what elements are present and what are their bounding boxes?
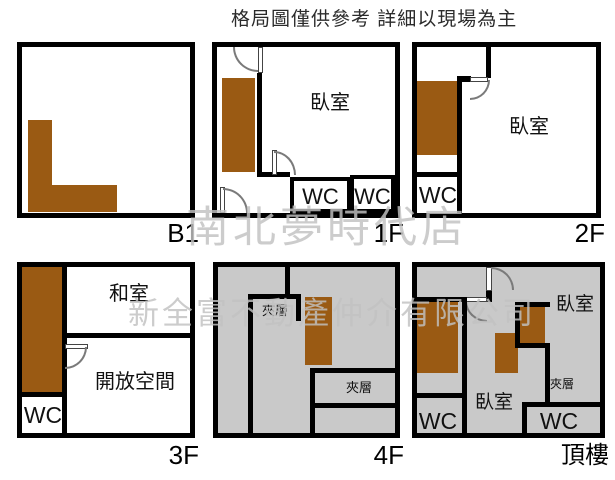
door-leaf-icon: [258, 47, 263, 73]
room-label-wc: WC: [418, 409, 458, 433]
wall: [67, 333, 190, 338]
door-arc-icon: [223, 188, 248, 213]
room-label-mezzanine: 夾層: [254, 304, 296, 317]
room-wc: WC: [290, 177, 351, 213]
floor-label-2f: 2F: [412, 220, 605, 246]
stairs-area: [28, 185, 117, 212]
floorplan-3f: 和室 開放空間 WC: [17, 262, 195, 438]
door-arc-icon: [274, 151, 296, 175]
door-arc-icon: [65, 347, 87, 369]
floor-b1: B1: [17, 42, 195, 242]
wall: [457, 76, 471, 82]
floor-roof: WC WC 臥室 臥室 夾層 頂樓: [412, 262, 605, 472]
floor-label-1f: 1F: [212, 220, 404, 246]
room-label-bedroom: 臥室: [494, 117, 564, 137]
wall: [248, 294, 301, 299]
stairs-area: [305, 297, 332, 365]
floorplan-b1: [17, 42, 195, 218]
room-label-bedroom: 臥室: [469, 393, 519, 413]
floor-label-roof: 頂樓: [412, 443, 609, 469]
wall: [515, 343, 548, 348]
stairs-area: [520, 307, 545, 343]
floor-4f: 夾層 夾層 4F: [213, 262, 400, 472]
floorplan-4f: 夾層 夾層: [213, 262, 400, 438]
wall: [545, 343, 550, 407]
wall: [522, 402, 600, 407]
stairs-area: [417, 81, 458, 155]
door-arc-icon: [233, 47, 258, 72]
wall: [22, 392, 67, 397]
door-arc-icon: [465, 301, 487, 322]
floorplan-sheet: 格局圖僅供參考 詳細以現場為主 B1: [0, 0, 615, 480]
door-arc-icon: [491, 267, 514, 290]
floor-label-3f: 3F: [17, 442, 199, 468]
wall: [296, 294, 301, 321]
floorplan-1f: 臥室 WC WC: [212, 42, 400, 218]
stairs-area: [222, 78, 255, 172]
room-label-mezzanine: 夾層: [334, 381, 384, 394]
wall: [257, 73, 262, 175]
floor-1f: 臥室 WC WC 1F: [212, 42, 400, 242]
room-label-tatami: 和室: [94, 284, 164, 304]
wall: [417, 393, 462, 398]
room-label-wc: WC: [417, 183, 459, 207]
wall: [310, 368, 315, 433]
room-label-mezzanine: 夾層: [542, 378, 582, 391]
floor-label-4f: 4F: [213, 442, 404, 468]
floor-label-b1: B1: [17, 220, 199, 246]
wall: [462, 297, 467, 433]
floorplan-roof: WC WC 臥室 臥室 夾層: [412, 262, 605, 438]
room-label-wc: WC: [529, 409, 589, 433]
wall: [522, 402, 527, 433]
floor-3f: 和室 開放空間 WC 3F: [17, 262, 195, 472]
wall: [310, 403, 395, 408]
stairs-area: [417, 302, 458, 373]
room-label-bedroom: 臥室: [551, 295, 599, 315]
door-arc-icon: [470, 80, 490, 100]
wall: [248, 294, 253, 433]
disclaimer-title: 格局圖僅供參考 詳細以現場為主: [231, 4, 517, 31]
room-label-wc: WC: [22, 403, 64, 427]
wall: [417, 172, 462, 177]
room-wc: WC: [350, 175, 395, 213]
floor-2f: WC 臥室 2F: [412, 42, 601, 242]
room-label-bedroom: 臥室: [295, 93, 365, 113]
wall: [310, 368, 395, 373]
room-label-open-space: 開放空間: [75, 372, 195, 392]
floorplan-2f: WC 臥室: [412, 42, 601, 218]
wall: [285, 267, 290, 296]
wall: [486, 47, 491, 78]
stairs-area: [22, 267, 62, 392]
